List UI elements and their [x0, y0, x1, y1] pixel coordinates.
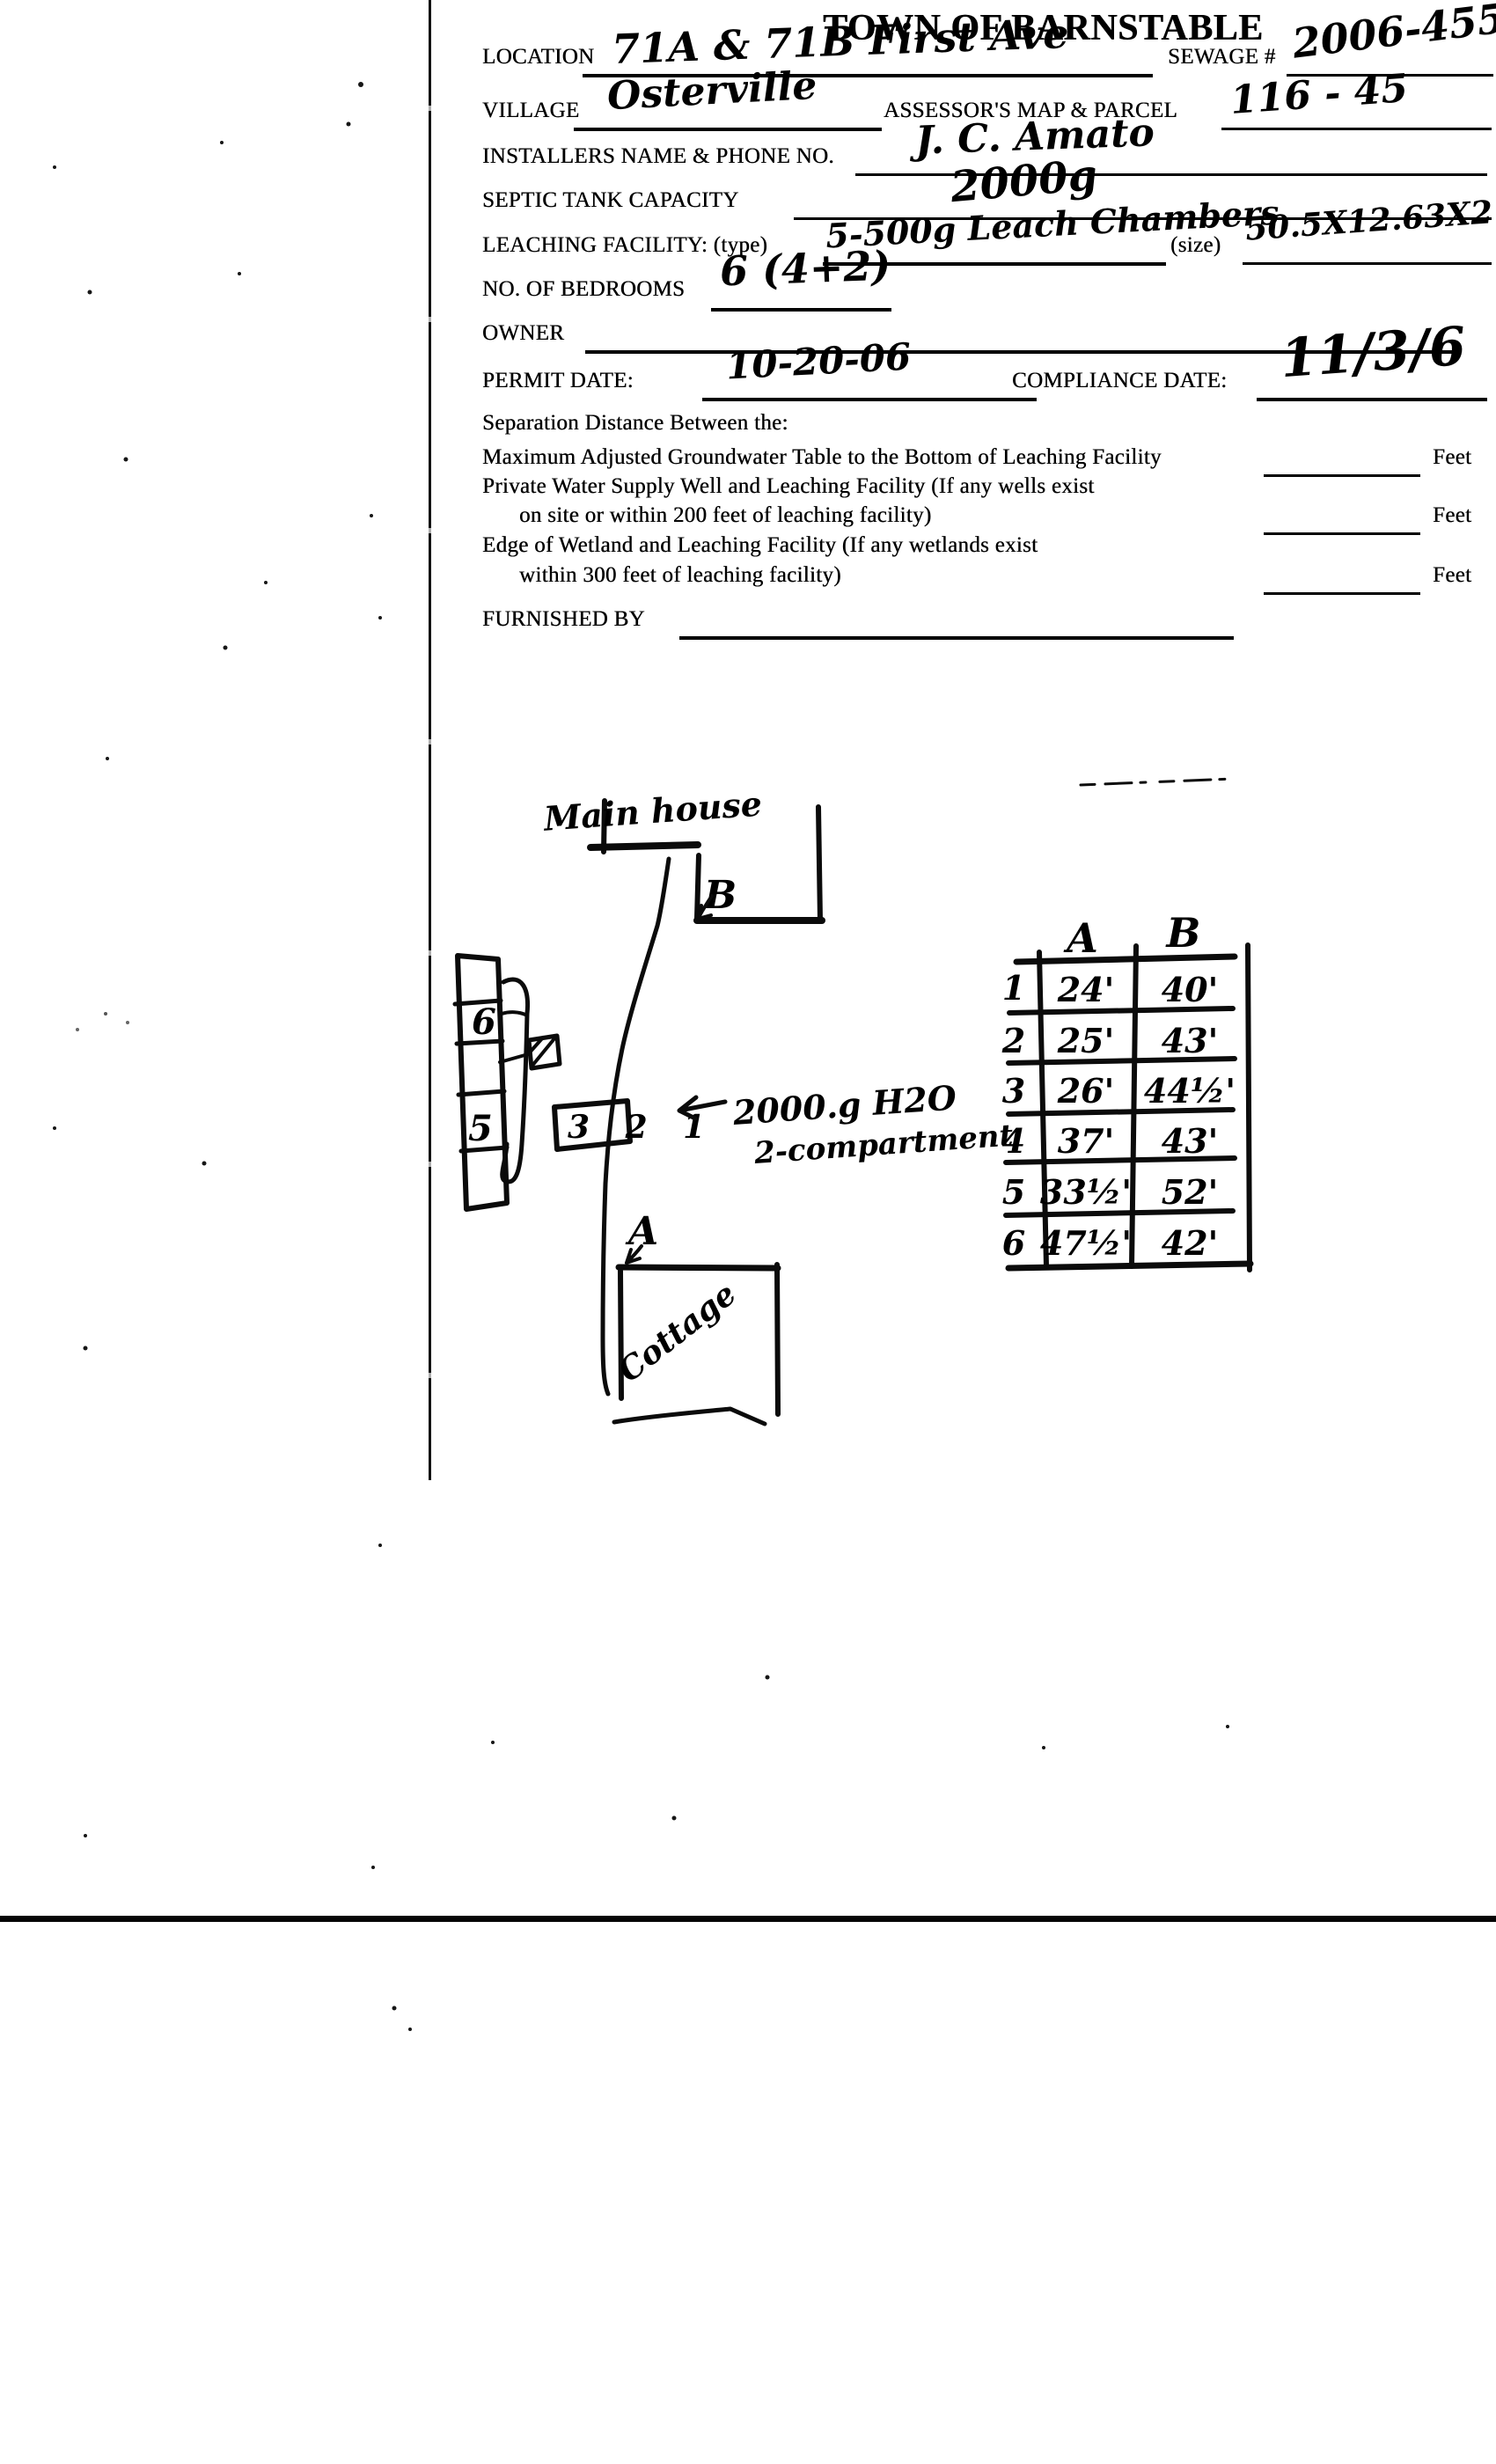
table-cell-b: 44½' [1144, 1071, 1236, 1111]
table-cell-a: 33½' [1040, 1172, 1132, 1212]
table-cell-a: 37' [1058, 1121, 1115, 1161]
table-top-line [1016, 957, 1235, 962]
main-house-right-wall [818, 807, 820, 920]
table-cell-b: 52' [1162, 1172, 1219, 1212]
chamber-number-bottom: 5 [468, 1108, 493, 1149]
table-row-number: 3 [1002, 1071, 1025, 1111]
cottage-right-wall [777, 1265, 778, 1414]
cottage-left-wall [620, 1271, 621, 1398]
tank-321-numbers: 3 2 1 [568, 1109, 717, 1146]
cottage-bottom-line [614, 1409, 765, 1424]
chamber-row-blob [502, 979, 528, 1182]
main-house-lower-left-wall [590, 845, 698, 847]
table-row-number: 2 [1001, 1021, 1025, 1060]
distribution-box-hatch [529, 1038, 555, 1067]
table-cell-a: 24' [1057, 970, 1115, 1009]
scanned-septic-card: TOWN OF BARNSTABLE LOCATION 71A & 71B Fi… [0, 0, 1496, 2464]
table-header-b: B [1165, 909, 1201, 957]
leach-chamber-strip [458, 956, 507, 1209]
chamber-number-top: 6 [472, 1001, 496, 1043]
cottage-label: Cottage [612, 1275, 744, 1390]
table-row-number: 4 [1002, 1121, 1025, 1161]
dashed-scan-mark [1081, 779, 1232, 785]
point-b-label: B [702, 873, 737, 918]
table-cell-b: 40' [1162, 970, 1219, 1009]
bottom-scan-line [0, 1916, 1496, 1922]
main-house-notch-wall [697, 855, 699, 918]
table-cell-a: 47½' [1040, 1223, 1132, 1263]
site-sketch: Main house B 6 5 3 2 1 2000.g H2O 2-comp… [0, 0, 1496, 2464]
cottage-top-wall [619, 1267, 778, 1268]
table-cell-b: 43' [1162, 1121, 1219, 1161]
table-row-number: 5 [1002, 1172, 1025, 1212]
table-header-a: A [1063, 914, 1098, 962]
table-row-number: 6 [1002, 1223, 1025, 1263]
table-cell-a: 25' [1057, 1021, 1115, 1060]
table-cell-b: 42' [1162, 1223, 1219, 1263]
scan-noise-specks [53, 82, 1229, 2031]
table-cell-a: 26' [1057, 1071, 1115, 1111]
table-cell-b: 43' [1162, 1021, 1219, 1060]
main-house-label: Main house [541, 783, 764, 838]
table-row-number: 1 [1002, 968, 1025, 1008]
